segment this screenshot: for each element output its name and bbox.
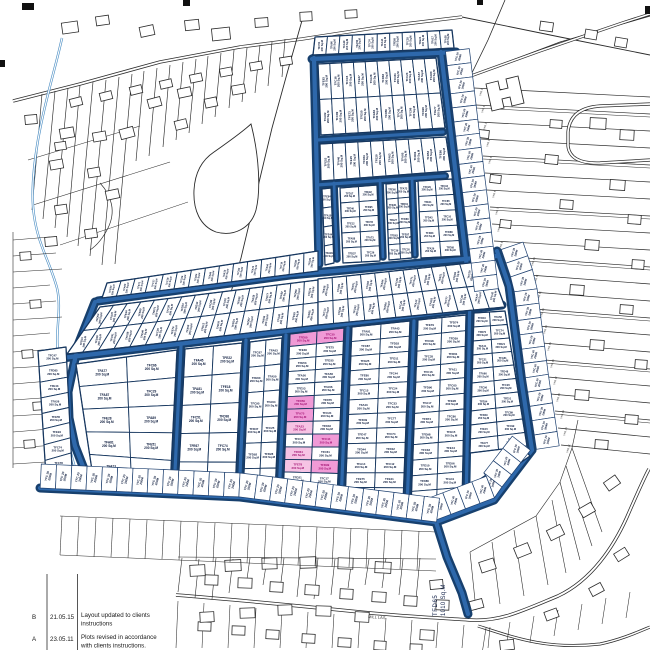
svg-text:21.05.15: 21.05.15 bbox=[50, 614, 75, 621]
svg-text:200 Sq.M: 200 Sq.M bbox=[423, 342, 436, 346]
svg-text:200 Sq.M: 200 Sq.M bbox=[447, 355, 460, 359]
svg-text:200 Sq.M: 200 Sq.M bbox=[446, 371, 459, 375]
svg-text:200 Sq.M: 200 Sq.M bbox=[219, 389, 233, 393]
svg-text:200 Sq.M: 200 Sq.M bbox=[337, 74, 341, 87]
svg-text:200 Sq.M: 200 Sq.M bbox=[267, 352, 280, 356]
svg-text:TFD65: TFD65 bbox=[433, 595, 439, 616]
svg-text:200 Sq.M: 200 Sq.M bbox=[323, 236, 334, 239]
svg-text:200 Sq.M: 200 Sq.M bbox=[385, 420, 398, 424]
svg-text:200 Sq.M: 200 Sq.M bbox=[389, 252, 400, 255]
svg-text:200 Sq.M: 200 Sq.M bbox=[386, 405, 399, 409]
svg-text:200 Sq.M: 200 Sq.M bbox=[249, 405, 262, 409]
svg-text:200 Sq.M: 200 Sq.M bbox=[420, 420, 433, 424]
svg-text:200 Sq.M: 200 Sq.M bbox=[400, 251, 411, 254]
svg-text:200 Sq.M: 200 Sq.M bbox=[293, 440, 306, 444]
svg-text:200 Sq.M: 200 Sq.M bbox=[345, 225, 356, 228]
svg-text:200 Sq.M: 200 Sq.M bbox=[443, 234, 454, 237]
svg-text:200 Sq.M: 200 Sq.M bbox=[440, 203, 451, 206]
svg-text:instructions: instructions bbox=[81, 621, 112, 628]
svg-text:200 Sq.M: 200 Sq.M bbox=[251, 354, 264, 358]
svg-text:200 Sq.M: 200 Sq.M bbox=[266, 378, 279, 382]
svg-text:200 Sq.M: 200 Sq.M bbox=[250, 379, 263, 383]
svg-text:200 Sq.M: 200 Sq.M bbox=[333, 39, 337, 50]
svg-text:200 Sq.M: 200 Sq.M bbox=[418, 482, 431, 486]
svg-text:200 Sq.M: 200 Sq.M bbox=[359, 347, 372, 351]
svg-text:200 Sq.M: 200 Sq.M bbox=[321, 198, 332, 201]
svg-text:200 Sq.M: 200 Sq.M bbox=[420, 436, 433, 440]
svg-text:200 Sq.M: 200 Sq.M bbox=[445, 433, 458, 437]
svg-text:200 Sq.M: 200 Sq.M bbox=[478, 416, 489, 420]
svg-text:200 Sq.M: 200 Sq.M bbox=[421, 404, 434, 408]
svg-text:200 Sq.M: 200 Sq.M bbox=[358, 392, 371, 396]
svg-text:200 Sq.M: 200 Sq.M bbox=[396, 71, 400, 84]
svg-text:200 Sq.M: 200 Sq.M bbox=[352, 154, 356, 167]
svg-text:200 Sq.M: 200 Sq.M bbox=[363, 108, 367, 121]
svg-text:200 Sq.M: 200 Sq.M bbox=[100, 420, 114, 424]
svg-text:200 Sq.M: 200 Sq.M bbox=[322, 388, 335, 392]
svg-text:200 Sq.M: 200 Sq.M bbox=[345, 210, 356, 213]
svg-text:200 Sq.M: 200 Sq.M bbox=[319, 466, 332, 470]
svg-text:200 Sq.M: 200 Sq.M bbox=[248, 430, 261, 434]
svg-text:200 Sq.M: 200 Sq.M bbox=[363, 194, 374, 197]
svg-text:200 Sq.M: 200 Sq.M bbox=[384, 450, 397, 454]
svg-text:200 Sq.M: 200 Sq.M bbox=[416, 149, 420, 162]
svg-text:200 Sq.M: 200 Sq.M bbox=[293, 428, 306, 432]
svg-text:200 Sq.M: 200 Sq.M bbox=[346, 255, 357, 258]
svg-text:200 Sq.M: 200 Sq.M bbox=[321, 414, 334, 418]
svg-text:200 Sq.M: 200 Sq.M bbox=[358, 38, 362, 49]
svg-text:200 Sq.M: 200 Sq.M bbox=[292, 466, 305, 470]
svg-text:200 Sq.M: 200 Sq.M bbox=[296, 364, 309, 368]
svg-text:200 Sq.M: 200 Sq.M bbox=[445, 418, 458, 422]
svg-text:200 Sq.M: 200 Sq.M bbox=[387, 375, 400, 379]
svg-text:200 Sq.M: 200 Sq.M bbox=[387, 390, 400, 394]
svg-text:200 Sq.M: 200 Sq.M bbox=[246, 456, 259, 460]
svg-text:200 Sq.M: 200 Sq.M bbox=[476, 333, 487, 337]
svg-text:200 Sq.M: 200 Sq.M bbox=[497, 359, 508, 363]
svg-text:200 Sq.M: 200 Sq.M bbox=[388, 345, 401, 349]
svg-text:200 Sq.M: 200 Sq.M bbox=[370, 37, 374, 48]
svg-text:200 Sq.M: 200 Sq.M bbox=[356, 421, 369, 425]
svg-text:200 Sq.M: 200 Sq.M bbox=[396, 36, 400, 47]
svg-text:200 Sq.M: 200 Sq.M bbox=[363, 209, 374, 212]
svg-text:200 Sq.M: 200 Sq.M bbox=[354, 480, 367, 484]
svg-text:200 Sq.M: 200 Sq.M bbox=[442, 148, 446, 161]
svg-text:200 Sq.M: 200 Sq.M bbox=[400, 236, 411, 239]
svg-text:200 Sq.M: 200 Sq.M bbox=[388, 237, 399, 240]
svg-text:200 Sq.M: 200 Sq.M bbox=[98, 396, 112, 400]
svg-text:200 Sq.M: 200 Sq.M bbox=[477, 361, 488, 365]
svg-text:200 Sq.M: 200 Sq.M bbox=[320, 440, 333, 444]
svg-text:200 Sq.M: 200 Sq.M bbox=[144, 446, 158, 450]
svg-text:200 Sq.M: 200 Sq.M bbox=[384, 465, 397, 469]
svg-text:200 Sq.M: 200 Sq.M bbox=[321, 401, 334, 405]
svg-text:B: B bbox=[32, 614, 36, 621]
svg-text:200 Sq.M: 200 Sq.M bbox=[412, 105, 416, 118]
svg-text:200 Sq.M: 200 Sq.M bbox=[420, 70, 424, 83]
svg-text:200 Sq.M: 200 Sq.M bbox=[265, 403, 278, 407]
svg-text:200 Sq.M: 200 Sq.M bbox=[220, 359, 234, 363]
svg-text:200 Sq.M: 200 Sq.M bbox=[503, 413, 514, 417]
svg-text:200 Sq.M: 200 Sq.M bbox=[326, 110, 330, 123]
svg-text:200 Sq.M: 200 Sq.M bbox=[356, 436, 369, 440]
svg-text:200 Sq.M: 200 Sq.M bbox=[421, 35, 425, 46]
svg-text:200 Sq.M: 200 Sq.M bbox=[351, 109, 355, 122]
svg-text:200 Sq.M: 200 Sq.M bbox=[425, 250, 436, 253]
svg-text:200 Sq.M: 200 Sq.M bbox=[436, 104, 440, 117]
svg-text:200 Sq.M: 200 Sq.M bbox=[502, 400, 513, 404]
svg-text:200 Sq.M: 200 Sq.M bbox=[445, 249, 456, 252]
svg-text:200 Sq.M: 200 Sq.M bbox=[444, 449, 457, 453]
svg-text:200 Sq.M: 200 Sq.M bbox=[387, 107, 391, 120]
svg-text:200 Sq.M: 200 Sq.M bbox=[419, 451, 432, 455]
svg-text:200 Sq.M: 200 Sq.M bbox=[389, 330, 402, 334]
svg-text:200 Sq.M: 200 Sq.M bbox=[421, 389, 434, 393]
svg-text:200 Sq.M: 200 Sq.M bbox=[477, 388, 488, 392]
svg-text:200 Sq.M: 200 Sq.M bbox=[323, 349, 336, 353]
svg-text:200 Sq.M: 200 Sq.M bbox=[264, 429, 277, 433]
svg-text:with clients instructions.: with clients instructions. bbox=[80, 643, 146, 650]
svg-text:200 Sq.M: 200 Sq.M bbox=[320, 427, 333, 431]
svg-text:200 Sq.M: 200 Sq.M bbox=[345, 39, 349, 50]
svg-text:200 Sq.M: 200 Sq.M bbox=[448, 324, 461, 328]
svg-text:200 Sq.M: 200 Sq.M bbox=[360, 333, 373, 337]
svg-text:200 Sq.M: 200 Sq.M bbox=[429, 148, 433, 161]
svg-text:200 Sq.M: 200 Sq.M bbox=[297, 339, 310, 343]
svg-text:200 Sq.M: 200 Sq.M bbox=[494, 331, 505, 335]
svg-text:200 Sq.M: 200 Sq.M bbox=[404, 150, 408, 163]
svg-text:200 Sq.M: 200 Sq.M bbox=[408, 36, 412, 47]
svg-text:200 Sq.M: 200 Sq.M bbox=[476, 319, 487, 323]
svg-text:200 Sq.M: 200 Sq.M bbox=[422, 358, 435, 362]
svg-text:200 Sq.M: 200 Sq.M bbox=[145, 367, 159, 371]
svg-text:200 Sq.M: 200 Sq.M bbox=[478, 430, 489, 434]
svg-text:200 Sq.M: 200 Sq.M bbox=[387, 207, 398, 210]
svg-text:200 Sq.M: 200 Sq.M bbox=[408, 70, 412, 83]
svg-text:200 Sq.M: 200 Sq.M bbox=[387, 192, 398, 195]
svg-text:200 Sq.M: 200 Sq.M bbox=[424, 235, 435, 238]
svg-text:200 Sq.M: 200 Sq.M bbox=[358, 377, 371, 381]
svg-text:200 Sq.M: 200 Sq.M bbox=[319, 453, 332, 457]
svg-text:200 Sq.M: 200 Sq.M bbox=[388, 360, 401, 364]
svg-text:200 Sq.M: 200 Sq.M bbox=[192, 362, 206, 366]
svg-text:200 Sq.M: 200 Sq.M bbox=[444, 480, 457, 484]
svg-text:200 Sq.M: 200 Sq.M bbox=[360, 73, 364, 86]
svg-text:200 Sq.M: 200 Sq.M bbox=[50, 418, 63, 422]
svg-text:200 Sq.M: 200 Sq.M bbox=[439, 188, 450, 191]
svg-text:200 Sq.M: 200 Sq.M bbox=[423, 326, 436, 330]
svg-text:200 Sq.M: 200 Sq.M bbox=[446, 387, 459, 391]
svg-text:23.05.11: 23.05.11 bbox=[50, 636, 74, 643]
svg-text:200 Sq.M: 200 Sq.M bbox=[46, 356, 59, 360]
svg-text:200 Sq.M: 200 Sq.M bbox=[187, 448, 201, 452]
svg-text:200 Sq.M: 200 Sq.M bbox=[294, 415, 307, 419]
svg-text:200 Sq.M: 200 Sq.M bbox=[296, 351, 309, 355]
svg-text:200 Sq.M: 200 Sq.M bbox=[294, 402, 307, 406]
svg-text:200 Sq.M: 200 Sq.M bbox=[348, 73, 352, 86]
svg-text:200 Sq.M: 200 Sq.M bbox=[292, 453, 305, 457]
svg-text:200 Sq.M: 200 Sq.M bbox=[323, 362, 336, 366]
svg-text:200 Sq.M: 200 Sq.M bbox=[295, 390, 308, 394]
svg-text:200 Sq.M: 200 Sq.M bbox=[144, 393, 158, 397]
svg-text:200 Sq.M: 200 Sq.M bbox=[495, 345, 506, 349]
svg-text:200 Sq.M: 200 Sq.M bbox=[322, 375, 335, 379]
svg-text:200 Sq.M: 200 Sq.M bbox=[423, 219, 434, 222]
svg-text:200 Sq.M: 200 Sq.M bbox=[338, 109, 342, 122]
svg-text:200 Sq.M: 200 Sq.M bbox=[478, 402, 489, 406]
svg-text:200 Sq.M: 200 Sq.M bbox=[385, 435, 398, 439]
svg-text:200 Sq.M: 200 Sq.M bbox=[499, 372, 510, 376]
svg-text:200 Sq.M: 200 Sq.M bbox=[500, 386, 511, 390]
svg-text:200 Sq.M: 200 Sq.M bbox=[399, 221, 410, 224]
svg-text:200 Sq.M: 200 Sq.M bbox=[47, 372, 60, 376]
svg-text:200 Sq.M: 200 Sq.M bbox=[364, 239, 375, 242]
svg-text:200 Sq.M: 200 Sq.M bbox=[52, 449, 65, 453]
svg-text:200 Sq.M: 200 Sq.M bbox=[375, 107, 379, 120]
svg-text:200 Sq.M: 200 Sq.M bbox=[419, 467, 432, 471]
svg-text:200 Sq.M: 200 Sq.M bbox=[447, 340, 460, 344]
svg-text:200 Sq.M: 200 Sq.M bbox=[359, 362, 372, 366]
svg-text:200 Sq.M: 200 Sq.M bbox=[432, 69, 436, 82]
svg-text:200 Sq.M: 200 Sq.M bbox=[102, 444, 116, 448]
svg-text:Plots revised in accordance: Plots revised in accordance bbox=[81, 634, 157, 641]
svg-text:200 Sq.M: 200 Sq.M bbox=[144, 420, 158, 424]
svg-text:200 Sq.M: 200 Sq.M bbox=[378, 152, 382, 165]
svg-text:200 Sq.M: 200 Sq.M bbox=[263, 455, 276, 459]
svg-text:200 Sq.M: 200 Sq.M bbox=[505, 427, 516, 431]
svg-text:200 Sq.M: 200 Sq.M bbox=[422, 189, 433, 192]
svg-text:200 Sq.M: 200 Sq.M bbox=[325, 75, 329, 88]
svg-text:200 Sq.M: 200 Sq.M bbox=[346, 240, 357, 243]
svg-text:Layout updated to clients: Layout updated to clients bbox=[81, 612, 150, 619]
svg-text:200 Sq.M: 200 Sq.M bbox=[388, 222, 399, 225]
svg-text:200 Sq.M: 200 Sq.M bbox=[320, 40, 324, 51]
svg-text:1010 Sq.M: 1010 Sq.M bbox=[441, 584, 447, 616]
svg-text:200 Sq.M: 200 Sq.M bbox=[372, 72, 376, 85]
svg-text:200 Sq.M: 200 Sq.M bbox=[95, 373, 109, 377]
svg-text:200 Sq.M: 200 Sq.M bbox=[424, 105, 428, 118]
svg-text:200 Sq.M: 200 Sq.M bbox=[364, 224, 375, 227]
svg-text:200 Sq.M: 200 Sq.M bbox=[217, 418, 231, 422]
svg-text:200 Sq.M: 200 Sq.M bbox=[400, 106, 404, 119]
svg-text:200 Sq.M: 200 Sq.M bbox=[365, 254, 376, 257]
svg-text:200 Sq.M: 200 Sq.M bbox=[357, 406, 370, 410]
svg-text:200 Sq.M: 200 Sq.M bbox=[478, 444, 489, 448]
svg-text:200 Sq.M: 200 Sq.M bbox=[444, 465, 457, 469]
svg-text:200 Sq.M: 200 Sq.M bbox=[49, 403, 62, 407]
svg-text:200 Sq.M: 200 Sq.M bbox=[477, 374, 488, 378]
svg-text:200 Sq.M: 200 Sq.M bbox=[355, 465, 368, 469]
svg-text:200 Sq.M: 200 Sq.M bbox=[398, 191, 409, 194]
svg-text:200 Sq.M: 200 Sq.M bbox=[446, 34, 450, 45]
svg-text:200 Sq.M: 200 Sq.M bbox=[422, 204, 433, 207]
svg-text:200 Sq.M: 200 Sq.M bbox=[442, 218, 453, 221]
svg-text:200 Sq.M: 200 Sq.M bbox=[324, 336, 337, 340]
svg-text:200 Sq.M: 200 Sq.M bbox=[399, 206, 410, 209]
svg-text:200 Sq.M: 200 Sq.M bbox=[384, 71, 388, 84]
svg-text:200 Sq.M: 200 Sq.M bbox=[51, 433, 64, 437]
svg-text:200 Sq.M: 200 Sq.M bbox=[190, 391, 204, 395]
svg-text:200 Sq.M: 200 Sq.M bbox=[327, 155, 331, 168]
svg-text:200 Sq.M: 200 Sq.M bbox=[355, 451, 368, 455]
svg-text:200 Sq.M: 200 Sq.M bbox=[477, 347, 488, 351]
svg-text:200 Sq.M: 200 Sq.M bbox=[383, 37, 387, 48]
svg-text:200 Sq.M: 200 Sq.M bbox=[492, 318, 503, 322]
svg-text:200 Sq.M: 200 Sq.M bbox=[446, 402, 459, 406]
svg-text:200 Sq.M: 200 Sq.M bbox=[295, 377, 308, 381]
svg-text:200 Sq.M: 200 Sq.M bbox=[391, 151, 395, 164]
svg-text:200 Sq.M: 200 Sq.M bbox=[189, 419, 203, 423]
svg-text:200 Sq.M: 200 Sq.M bbox=[365, 153, 369, 166]
svg-text:200 Sq.M: 200 Sq.M bbox=[344, 195, 355, 198]
svg-text:200 Sq.M: 200 Sq.M bbox=[422, 373, 435, 377]
svg-text:200 Sq.M: 200 Sq.M bbox=[216, 448, 230, 452]
svg-text:200 Sq.M: 200 Sq.M bbox=[383, 480, 396, 484]
svg-text:200 Sq.M: 200 Sq.M bbox=[340, 154, 344, 167]
svg-text:200 Sq.M: 200 Sq.M bbox=[48, 387, 61, 391]
svg-text:200 Sq.M: 200 Sq.M bbox=[434, 34, 438, 45]
